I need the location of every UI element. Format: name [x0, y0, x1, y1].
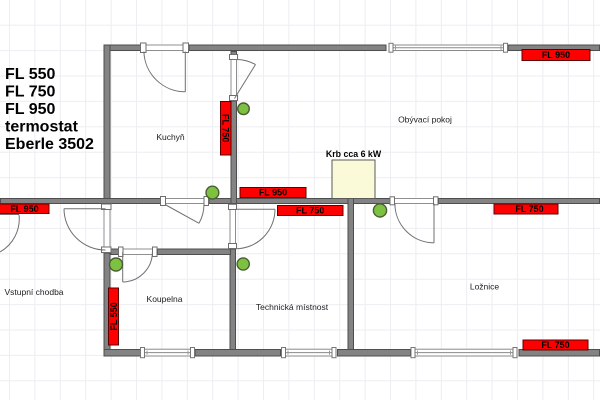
svg-text:Koupelna: Koupelna [147, 294, 183, 304]
svg-text:Kuchyň: Kuchyň [156, 132, 185, 142]
svg-text:FL 750: FL 750 [541, 340, 569, 350]
svg-text:FL 550: FL 550 [109, 302, 119, 330]
svg-text:FL 950: FL 950 [5, 101, 56, 118]
svg-text:Ložnice: Ložnice [470, 281, 500, 291]
svg-text:FL 750: FL 750 [5, 84, 56, 101]
svg-text:Technická místnost: Technická místnost [256, 302, 329, 312]
svg-text:FL 750: FL 750 [296, 206, 324, 216]
svg-text:FL 950: FL 950 [542, 50, 570, 60]
svg-text:FL 550: FL 550 [5, 66, 56, 83]
svg-text:FL 950: FL 950 [10, 204, 38, 214]
svg-text:Eberle 3502: Eberle 3502 [5, 136, 94, 153]
svg-text:termostat: termostat [5, 119, 79, 136]
svg-text:FL 750: FL 750 [515, 204, 543, 214]
svg-text:FL 950: FL 950 [259, 188, 287, 198]
svg-text:Obývací pokoj: Obývací pokoj [398, 114, 452, 124]
svg-text:Vstupní chodba: Vstupní chodba [4, 287, 63, 297]
svg-text:FL 750: FL 750 [220, 114, 230, 142]
svg-text:Krb cca 6 kW: Krb cca 6 kW [326, 149, 382, 159]
